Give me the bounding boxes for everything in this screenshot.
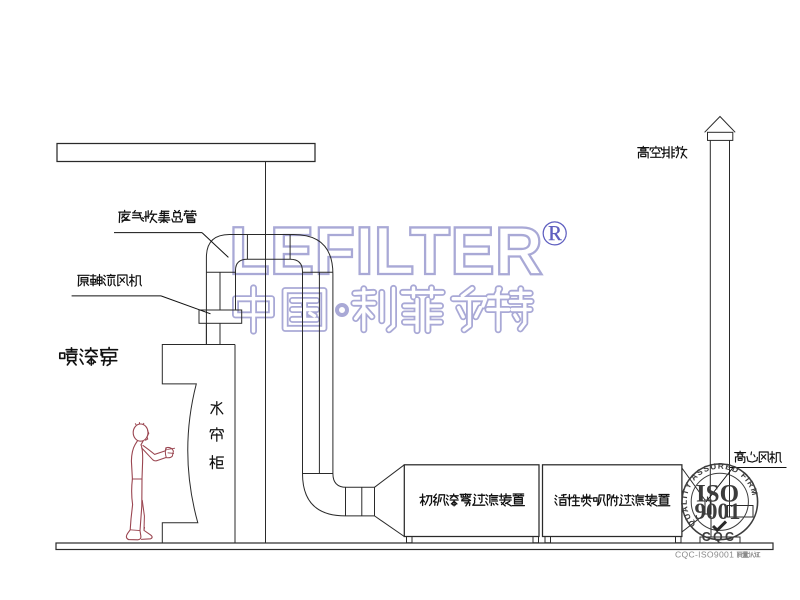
- svg-text:9001: 9001: [695, 499, 741, 524]
- svg-text:LEFILTER: LEFILTER: [229, 213, 543, 289]
- svg-text:CQC: CQC: [702, 530, 736, 544]
- svg-text:CQC-ISO9001: CQC-ISO9001: [675, 550, 734, 560]
- svg-text:®: ®: [541, 213, 568, 253]
